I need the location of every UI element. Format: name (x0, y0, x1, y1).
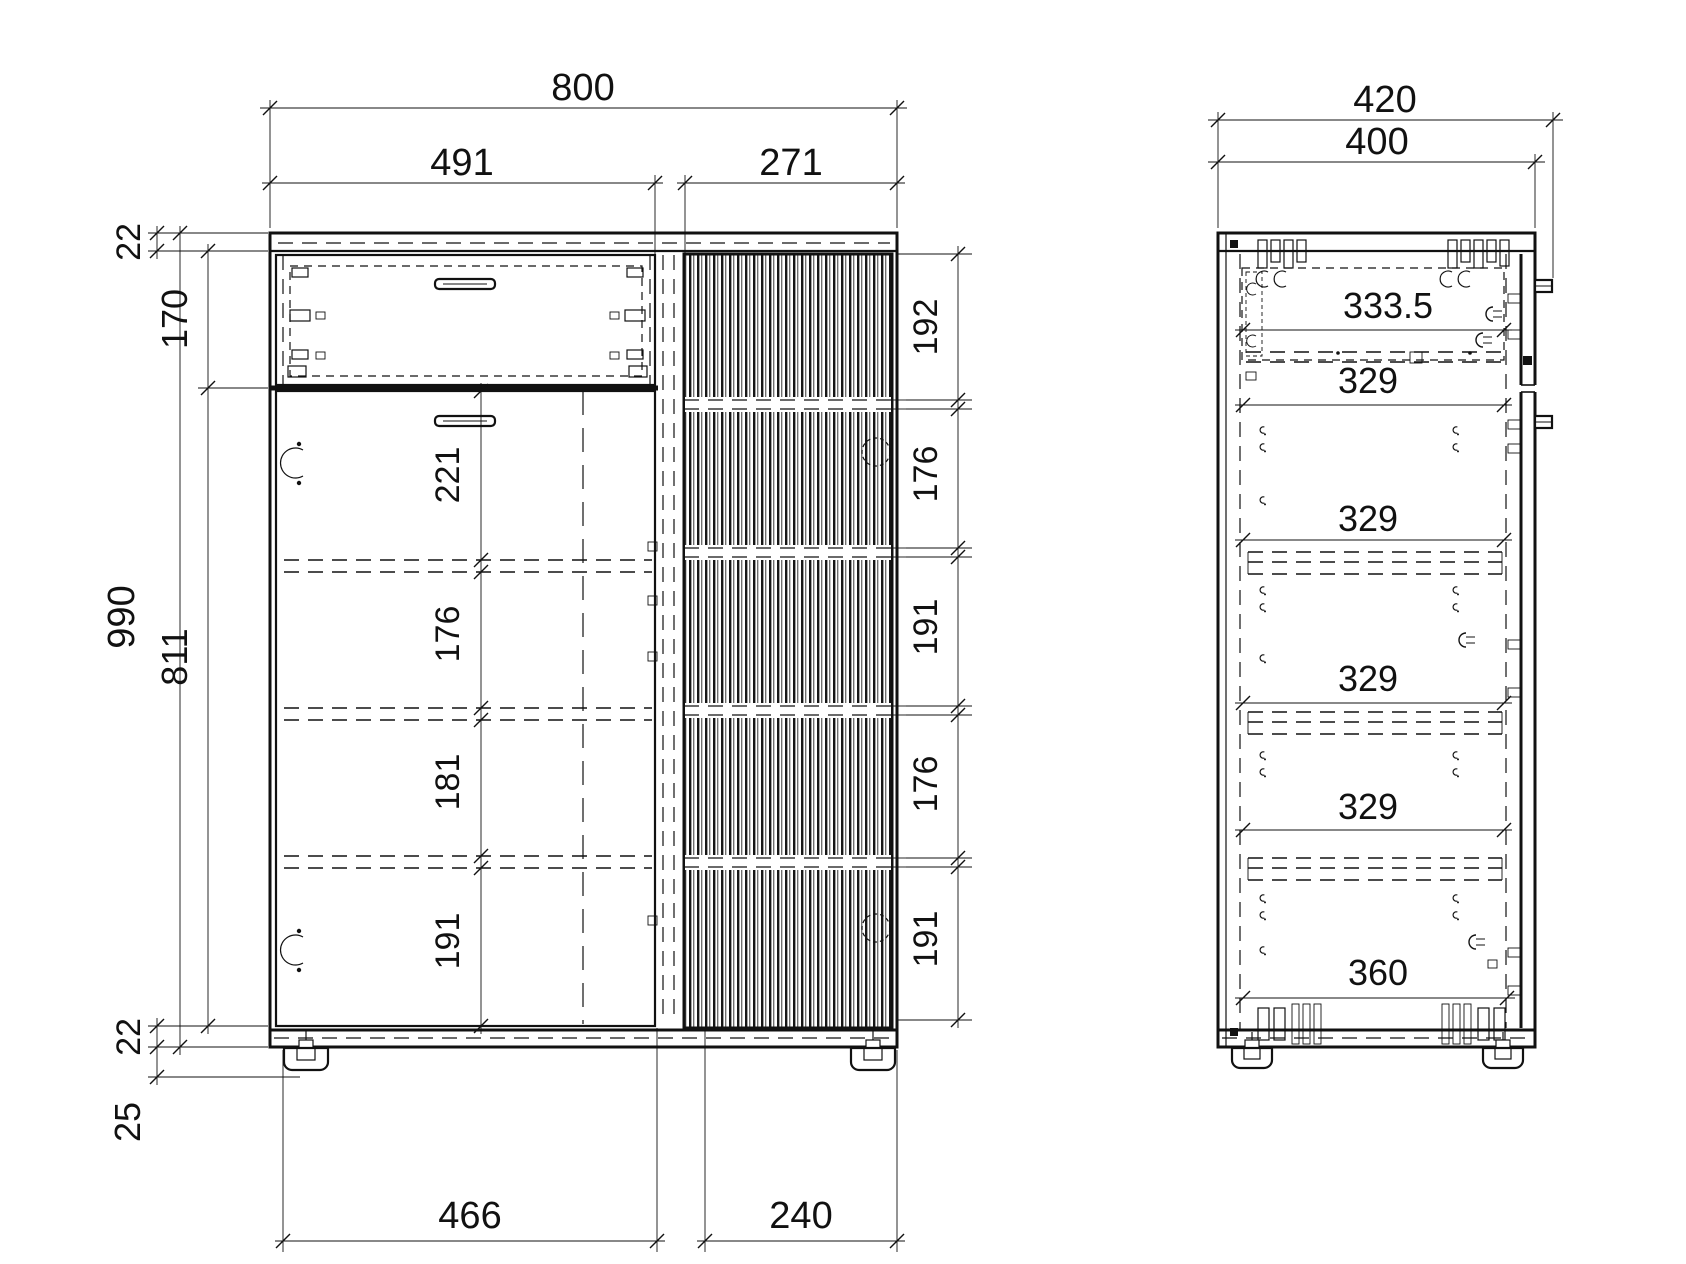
dim-side-inner-4: 329 (1338, 658, 1398, 699)
dim-front-right-width: 271 (759, 142, 822, 184)
dim-front-door-height: 811 (154, 628, 195, 685)
dim-front-top-panel: 22 (110, 223, 148, 261)
dim-front-drawer-height: 170 (154, 289, 195, 349)
dim-side-inner-6: 360 (1348, 952, 1408, 993)
side-carcass (1218, 233, 1535, 1047)
dim-side-body-depth: 400 (1345, 121, 1408, 163)
front-view: 800 491 271 22 22 25 (101, 67, 972, 1252)
fluted-shelf-crossing-1 (684, 397, 906, 412)
dim-front-total-width: 800 (551, 67, 614, 109)
dim-inner-chain-2: 176 (429, 606, 467, 663)
dim-right-chain-5: 191 (907, 911, 945, 968)
dim-side-inner-2: 329 (1338, 360, 1398, 401)
dim-side-total-depth: 420 (1353, 79, 1416, 121)
side-body-outline (1218, 233, 1535, 1047)
side-lock-block (1523, 356, 1532, 365)
dim-right-chain-2: 176 (907, 446, 945, 503)
dim-inner-chain-1: 221 (429, 447, 467, 504)
front-foot-left (284, 1048, 328, 1070)
cabinet-drawing-svg: 800 491 271 22 22 25 (0, 0, 1686, 1264)
side-foot-front (1483, 1048, 1523, 1068)
dim-inner-chain-3: 181 (429, 754, 467, 811)
fluted-shelf-crossing-2 (684, 545, 906, 560)
dim-side-inner-5: 329 (1338, 786, 1398, 827)
front-bottom-dims: 466 240 (275, 1028, 905, 1252)
fluted-shelf-crossing-4 (684, 855, 906, 870)
dim-inner-chain-4: 191 (429, 913, 467, 970)
dim-plinth-left: 466 (438, 1195, 501, 1237)
front-foot-right (851, 1048, 895, 1070)
dim-right-chain-4: 176 (907, 756, 945, 813)
dim-front-bottom-panel: 22 (110, 1018, 148, 1056)
dim-side-inner-1: 333.5 (1343, 285, 1433, 326)
dim-right-chain-1: 192 (907, 299, 945, 356)
dim-front-total-height: 990 (101, 585, 143, 648)
dim-plinth-right: 240 (769, 1195, 832, 1237)
fluted-door-panel (684, 254, 892, 1028)
side-view: 333.5 329 329 329 (1208, 79, 1563, 1068)
front-right-chain: 192 176 191 176 191 (896, 246, 972, 1028)
side-foot-rear (1232, 1048, 1272, 1068)
dim-front-left-width: 491 (430, 142, 493, 184)
dim-side-inner-3: 329 (1338, 498, 1398, 539)
fluted-shelf-crossing-3 (684, 703, 906, 718)
dim-front-foot-height: 25 (107, 1102, 148, 1142)
technical-drawing-canvas: 800 491 271 22 22 25 (0, 0, 1686, 1264)
front-fluted-door (684, 254, 906, 1028)
dim-right-chain-3: 191 (907, 599, 945, 656)
